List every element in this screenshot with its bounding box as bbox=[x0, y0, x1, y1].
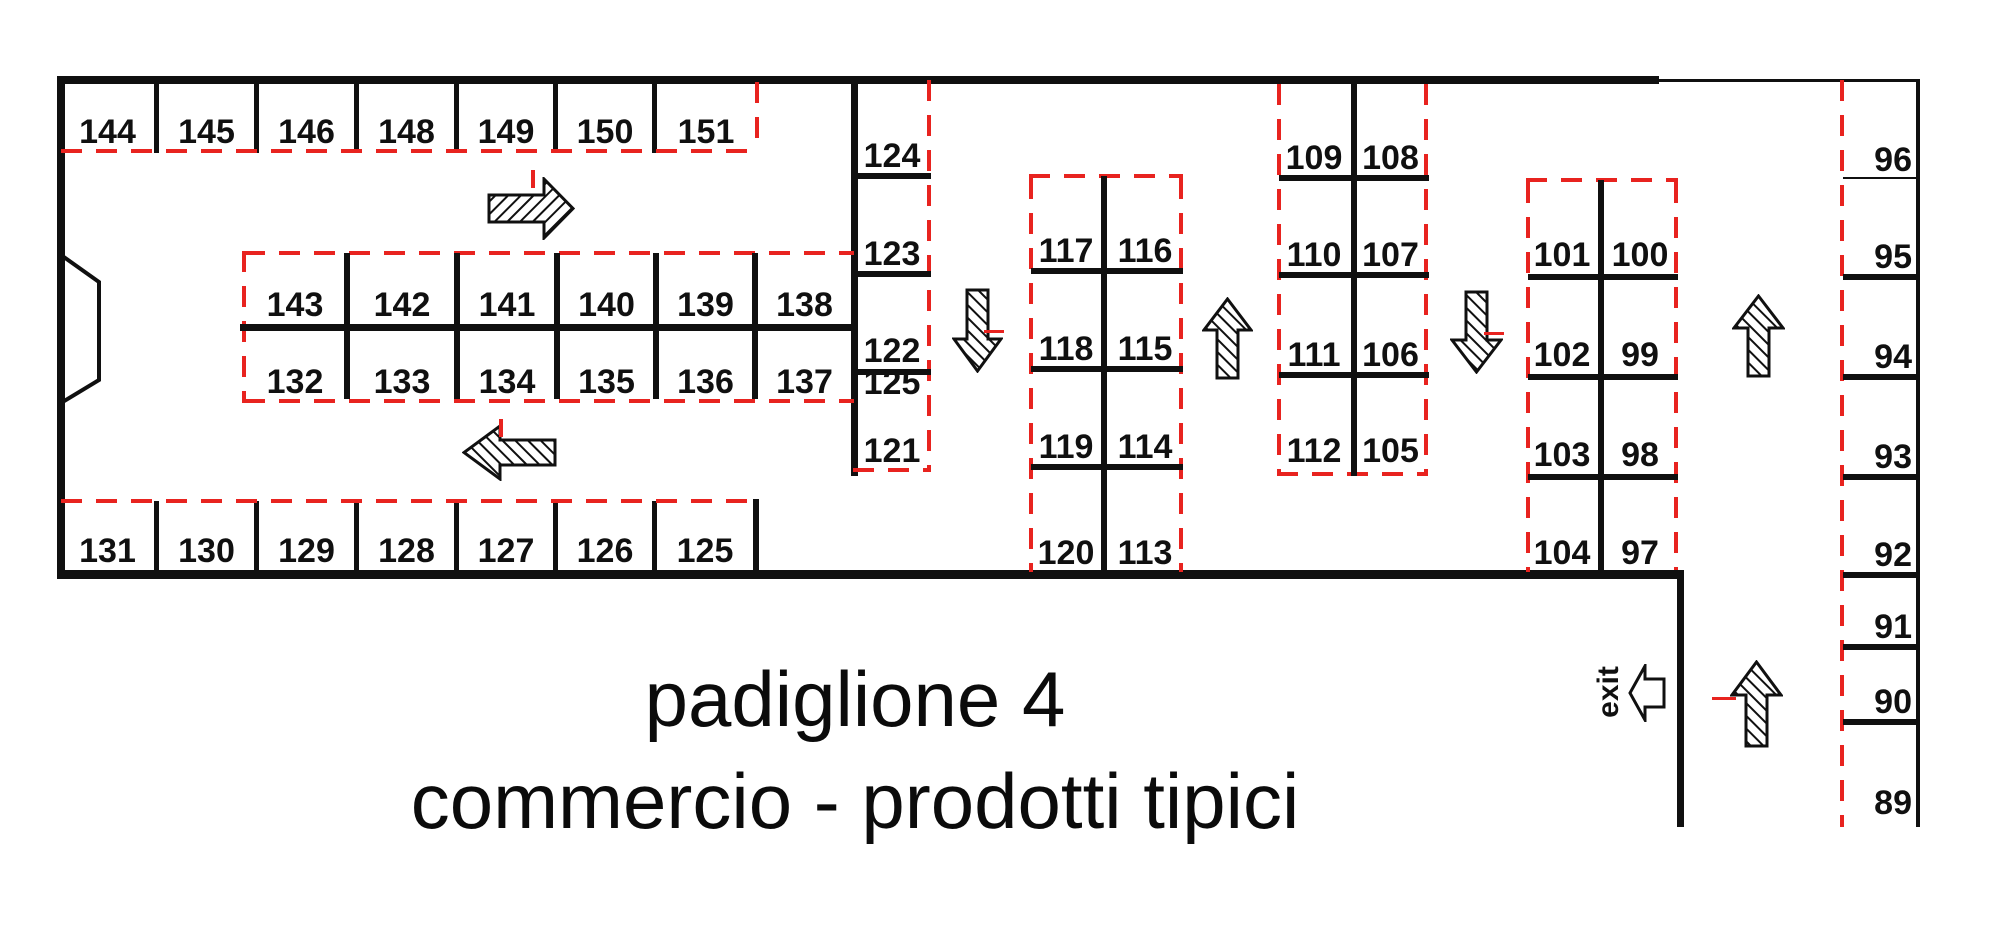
booth-143: 143 bbox=[246, 255, 344, 324]
booth-142: 142 bbox=[350, 255, 454, 324]
booth-104: 104 bbox=[1530, 480, 1594, 572]
booth-145: 145 bbox=[159, 84, 254, 151]
arrow-up-icon bbox=[1732, 294, 1785, 378]
floor-plan-padiglione-4: 144 145 146 148 149 150 151 131 130 129 … bbox=[0, 0, 2000, 931]
island-center-line bbox=[240, 324, 856, 331]
booth-124: 124 bbox=[858, 84, 926, 175]
booth-131: 131 bbox=[61, 505, 154, 570]
booth-133: 133 bbox=[350, 334, 454, 401]
arrow-up-icon bbox=[1202, 297, 1253, 380]
booth-150: 150 bbox=[558, 84, 652, 151]
booth-130: 130 bbox=[159, 505, 254, 570]
block-center-line bbox=[1351, 80, 1357, 476]
booth-91: 91 bbox=[1842, 578, 1917, 650]
booth-134: 134 bbox=[460, 334, 554, 401]
exit-label: exit bbox=[1592, 662, 1626, 722]
booth-97: 97 bbox=[1608, 480, 1672, 572]
booth-112: 112 bbox=[1281, 378, 1347, 470]
booth-139: 139 bbox=[659, 255, 752, 324]
booth-138: 138 bbox=[758, 255, 851, 324]
booth-140: 140 bbox=[560, 255, 653, 324]
booth-129: 129 bbox=[259, 505, 354, 570]
booth-103: 103 bbox=[1530, 380, 1594, 474]
wall-bottom bbox=[57, 570, 1684, 579]
booth-113: 113 bbox=[1109, 470, 1181, 572]
title-line-1: padiglione 4 bbox=[295, 648, 1415, 750]
booth-108: 108 bbox=[1359, 84, 1422, 177]
booth-123: 123 bbox=[858, 179, 926, 273]
booth-132: 132 bbox=[246, 334, 344, 401]
booth-120: 120 bbox=[1033, 470, 1099, 572]
booth-126: 126 bbox=[558, 505, 652, 570]
booth-98: 98 bbox=[1608, 380, 1672, 474]
booth-102: 102 bbox=[1530, 280, 1594, 374]
booth-128: 128 bbox=[359, 505, 454, 570]
booth-127: 127 bbox=[459, 505, 553, 570]
booth-141: 141 bbox=[460, 255, 554, 324]
wall-exit-corridor bbox=[1677, 570, 1684, 827]
red-tick bbox=[499, 419, 503, 437]
arrow-up-icon bbox=[1730, 660, 1783, 748]
booth-117: 117 bbox=[1033, 176, 1099, 270]
booth-89: 89 bbox=[1842, 725, 1917, 826]
red-tick bbox=[531, 170, 535, 188]
booth-96: 96 bbox=[1842, 84, 1917, 183]
red-tick bbox=[1484, 332, 1504, 335]
booth-105: 105 bbox=[1359, 378, 1422, 470]
booth-114: 114 bbox=[1109, 372, 1181, 466]
title-line-2: commercio - prodotti tipici bbox=[295, 750, 1415, 852]
booth-137: 137 bbox=[758, 334, 851, 401]
booth-121: 121 bbox=[858, 412, 926, 470]
exit-arrow-icon bbox=[1628, 664, 1666, 722]
dashed-line bbox=[61, 499, 753, 503]
arrow-left-icon bbox=[462, 424, 557, 481]
page-title: padiglione 4 commercio - prodotti tipici bbox=[295, 648, 1415, 852]
booth-125: 125 bbox=[858, 362, 926, 404]
booth-107: 107 bbox=[1359, 181, 1422, 274]
booth-135: 135 bbox=[560, 334, 653, 401]
red-tick bbox=[1712, 697, 1736, 700]
wall-top-thin bbox=[1655, 79, 1920, 82]
dashed-line bbox=[755, 82, 759, 149]
booth-99: 99 bbox=[1608, 280, 1672, 374]
booth-94: 94 bbox=[1842, 280, 1917, 380]
entrance-niche bbox=[57, 250, 103, 408]
row-end-wall bbox=[753, 499, 759, 570]
booth-115: 115 bbox=[1109, 274, 1181, 368]
booth-146: 146 bbox=[259, 84, 354, 151]
booth-118: 118 bbox=[1033, 274, 1099, 368]
booth-149: 149 bbox=[459, 84, 553, 151]
booth-110: 110 bbox=[1281, 181, 1347, 274]
booth-125b: 125 bbox=[657, 505, 753, 570]
booth-116: 116 bbox=[1109, 176, 1181, 270]
booth-95: 95 bbox=[1842, 183, 1917, 280]
booth-106: 106 bbox=[1359, 278, 1422, 374]
booth-122: 122 bbox=[858, 277, 926, 370]
red-tick bbox=[984, 330, 1004, 333]
dashed-line bbox=[1424, 84, 1428, 474]
booth-148: 148 bbox=[359, 84, 454, 151]
booth-111: 111 bbox=[1281, 278, 1347, 374]
block-center-line bbox=[1101, 176, 1107, 572]
booth-151: 151 bbox=[657, 84, 755, 151]
booth-136: 136 bbox=[659, 334, 752, 401]
booth-101: 101 bbox=[1530, 180, 1594, 274]
booth-93: 93 bbox=[1842, 380, 1917, 480]
wall-top-thick bbox=[57, 76, 1659, 84]
booth-144: 144 bbox=[61, 84, 154, 151]
booth-119: 119 bbox=[1033, 372, 1099, 466]
booth-100: 100 bbox=[1608, 180, 1672, 274]
booth-92: 92 bbox=[1842, 480, 1917, 578]
booth-90: 90 bbox=[1842, 650, 1917, 725]
booth-109: 109 bbox=[1281, 84, 1347, 177]
